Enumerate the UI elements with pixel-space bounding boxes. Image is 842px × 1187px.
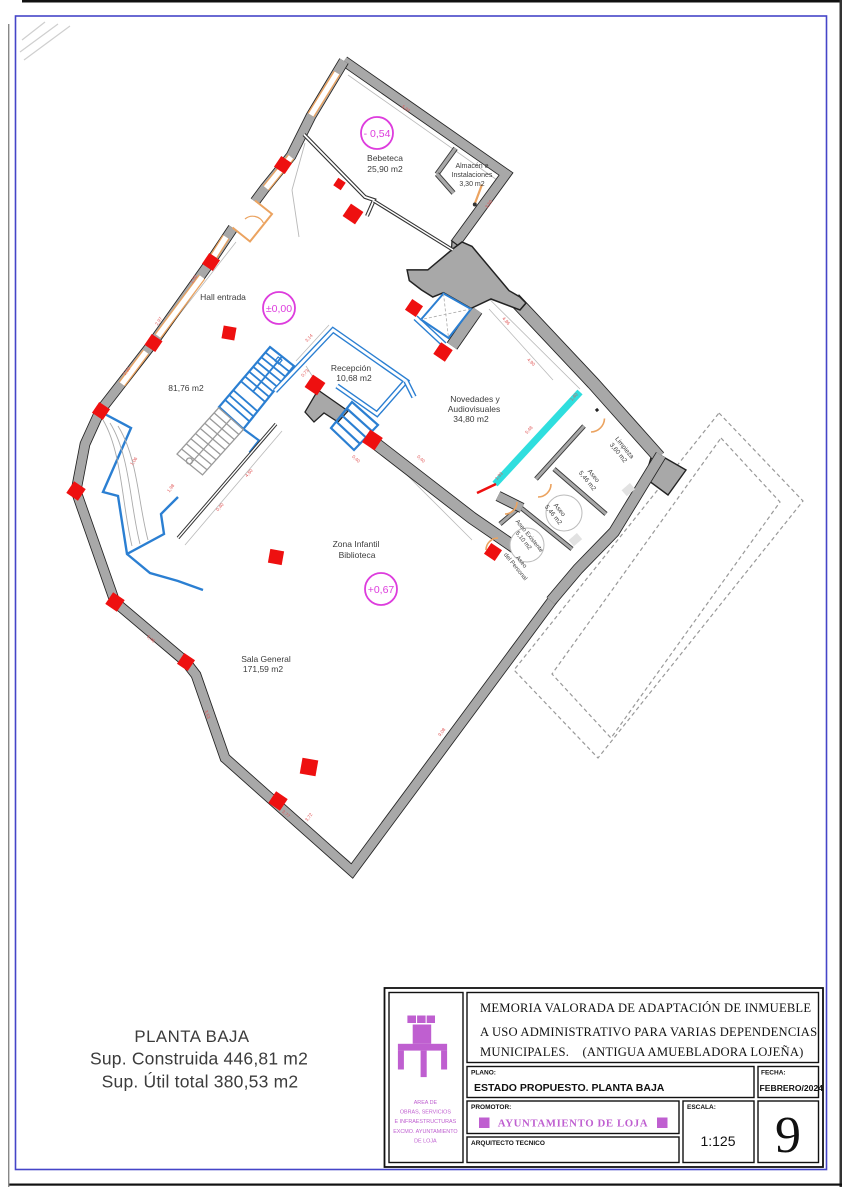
svg-text:AREA DE: AREA DE xyxy=(414,1100,438,1106)
svg-text:Audiovisuales: Audiovisuales xyxy=(448,404,500,414)
svg-text:34,80 m2: 34,80 m2 xyxy=(453,414,489,424)
svg-text:AYUNTAMIENTO DE LOJA: AYUNTAMIENTO DE LOJA xyxy=(498,1118,648,1130)
svg-text:Bebeteca: Bebeteca xyxy=(367,153,403,163)
svg-text:3,30 m2: 3,30 m2 xyxy=(459,181,484,188)
svg-text:Sup. Construida 446,81 m2: Sup. Construida 446,81 m2 xyxy=(90,1049,308,1069)
svg-text:171,59 m2: 171,59 m2 xyxy=(243,664,283,674)
svg-text:Biblioteca: Biblioteca xyxy=(339,550,376,560)
svg-text:Sup. Útil total 380,53 m2: Sup. Útil total 380,53 m2 xyxy=(102,1071,299,1092)
svg-text:Zona Infantil: Zona Infantil xyxy=(333,539,380,549)
svg-text:FECHA:: FECHA: xyxy=(761,1070,786,1077)
svg-text:ARQUITECTO TECNICO: ARQUITECTO TECNICO xyxy=(471,1140,545,1147)
svg-text:9: 9 xyxy=(775,1107,801,1164)
svg-text:Recepción: Recepción xyxy=(331,363,371,373)
svg-text:OBRAS, SERVICIOS: OBRAS, SERVICIOS xyxy=(400,1110,452,1116)
svg-text:25,90 m2: 25,90 m2 xyxy=(367,164,403,174)
svg-text:MUNICIPALES. (ANTIGUA AMUEB: MUNICIPALES. (ANTIGUA AMUEBLADORA LOJEÑA… xyxy=(480,1045,804,1059)
svg-text:Instalaciones: Instalaciones xyxy=(452,172,493,179)
svg-text:±0,00: ±0,00 xyxy=(266,303,292,315)
svg-text:PLANTA BAJA: PLANTA BAJA xyxy=(134,1027,250,1046)
svg-text:81,76 m2: 81,76 m2 xyxy=(168,383,204,393)
svg-text:PROMOTOR:: PROMOTOR: xyxy=(471,1104,511,1111)
svg-text:10,68 m2: 10,68 m2 xyxy=(336,373,372,383)
svg-text:ESTADO PROPUESTO. PLANTA BAJA: ESTADO PROPUESTO. PLANTA BAJA xyxy=(474,1082,665,1094)
svg-text:DE LOJA: DE LOJA xyxy=(414,1138,437,1144)
svg-text:+0,67: +0,67 xyxy=(368,584,395,596)
svg-text:MEMORIA VALORADA DE ADAPTACIÓN: MEMORIA VALORADA DE ADAPTACIÓN DE INMUEB… xyxy=(480,1001,811,1015)
svg-text:E INFRAESTRUCTURAS: E INFRAESTRUCTURAS xyxy=(395,1119,457,1125)
svg-text:Hall entrada: Hall entrada xyxy=(200,292,246,302)
svg-text:- 0,54: - 0,54 xyxy=(364,128,391,140)
svg-text:1:125: 1:125 xyxy=(700,1133,735,1149)
svg-text:Almacén e: Almacén e xyxy=(455,163,488,170)
svg-text:Sala General: Sala General xyxy=(241,654,291,664)
svg-text:EXCMO. AYUNTAMIENTO: EXCMO. AYUNTAMIENTO xyxy=(393,1129,457,1135)
svg-text:A USO ADMINISTRATIVO PARA VARI: A USO ADMINISTRATIVO PARA VARIAS DEPENDE… xyxy=(480,1025,817,1039)
svg-text:FEBRERO/2024: FEBRERO/2024 xyxy=(760,1083,824,1093)
svg-text:Novedades y: Novedades y xyxy=(450,394,500,404)
svg-text:PLANO:: PLANO: xyxy=(471,1070,496,1077)
svg-text:ESCALA:: ESCALA: xyxy=(687,1104,716,1111)
